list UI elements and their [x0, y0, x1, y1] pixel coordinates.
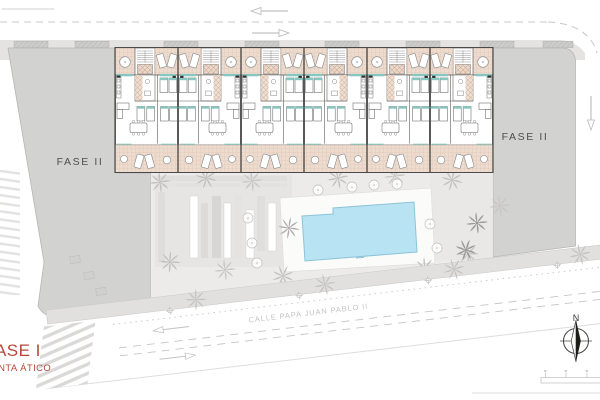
apartment-unit-1: [116, 48, 178, 173]
pool-ladder: [356, 257, 364, 258]
fase-ii-left-label: FASE II: [57, 156, 104, 168]
street-bottom-edge: [45, 305, 600, 389]
site-plan: FASE II FASE II: [0, 0, 600, 400]
parasol-icon: [247, 238, 257, 248]
traffic-arrow-right-icon: [252, 30, 289, 37]
parasol-icon: [313, 185, 323, 195]
street-furniture: [84, 271, 95, 279]
parasol-icon: [392, 179, 402, 189]
parasol-icon: [347, 182, 357, 192]
traffic-arrow-left-icon: [251, 8, 288, 15]
apartment-unit-5: [368, 48, 430, 173]
parasol-icon: [369, 180, 379, 190]
parasol-icon: [425, 219, 435, 229]
north-compass-icon: N: [560, 313, 592, 362]
right-parcel: FASE II: [493, 48, 576, 257]
street-furniture: [96, 287, 107, 295]
apartment-unit-3: [242, 48, 304, 173]
lane-arrow-right-icon: [159, 352, 196, 363]
traffic-arrow-down-icon: [588, 96, 595, 130]
fase-ii-right-label: FASE II: [502, 131, 549, 143]
apartment-unit-2: [179, 48, 241, 173]
parasol-icon: [432, 243, 442, 253]
parasol-icon: [252, 258, 262, 268]
left-crosswalk: [0, 170, 20, 295]
apartment-unit-4: [305, 48, 367, 173]
crosswalk: [36, 320, 96, 389]
street-name-label: CALLE PAPA JUAN PABLO II: [248, 302, 369, 325]
lane-arrow-left-icon: [153, 323, 190, 334]
fase-i-label: FASE I: [0, 341, 41, 360]
apartment-unit-6: [431, 48, 493, 173]
site-plan-page: FASE II FASE II: [0, 0, 600, 400]
parasol-icon: [243, 213, 253, 223]
planta-atico-label: PLANTA ÁTICO: [0, 363, 51, 374]
right-parcel-shape: [493, 48, 576, 257]
scale-bar: [472, 370, 600, 393]
street-furniture: [70, 255, 81, 263]
